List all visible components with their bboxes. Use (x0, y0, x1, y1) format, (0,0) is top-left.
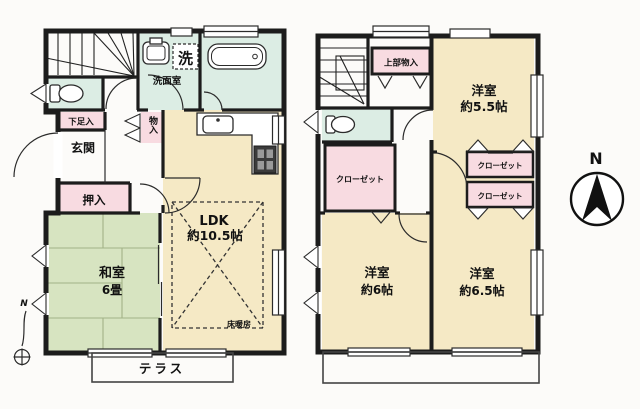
bedroom-c-label: 洋室 (469, 266, 495, 281)
tatami-size-label: 6畳 (102, 283, 122, 297)
laundry-label: 洗 (178, 50, 193, 68)
toilet-side-window-icon (31, 84, 46, 103)
compass-north-label: N (589, 149, 602, 168)
storage-bifold-door-icon-1 (125, 114, 140, 128)
floor1: 下足入 玄関 押入 和室 6畳 LDK 約10.5帖 床暖房 洗面室 洗 物入 … (14, 26, 285, 382)
bedroom-b-label: 洋室 (364, 265, 390, 280)
site-marker-line (22, 311, 26, 346)
oshiire-label: 押入 (83, 193, 106, 207)
tatami-side-window-icon-2 (32, 293, 46, 315)
hanging-wall-icon-2 (413, 76, 427, 88)
site-marker-north-label: N (20, 299, 28, 309)
floor2: 上部物入 洋室 約5.5帖 クローゼット クローゼット クローゼット 洋室 約6… (304, 26, 543, 383)
floor-plan-page: 下足入 玄関 押入 和室 6畳 LDK 約10.5帖 床暖房 洗面室 洗 物入 … (0, 0, 640, 409)
stairs-2f (318, 48, 368, 104)
storage-label: 物入 (147, 115, 159, 135)
ldk-label: LDK (199, 214, 229, 229)
shoe-storage-label: 下足入 (68, 118, 94, 128)
upper-storage-label: 上部物入 (384, 58, 419, 69)
toilet-side-window-icon-2f (304, 111, 318, 133)
washroom-window (171, 28, 192, 36)
entrance-label: 玄関 (71, 140, 95, 155)
closet-mid-upper-label: クローゼット (478, 160, 523, 170)
washroom-label: 洗面室 (153, 75, 182, 87)
bedroom-a-size-label: 約5.5帖 (460, 99, 508, 114)
terrace-label: テラス (139, 361, 185, 376)
tatami-room-label: 和室 (99, 265, 125, 281)
hall-door-arc (106, 78, 137, 109)
toilet-bowl-2f (332, 117, 355, 133)
tatami-side-window-icon-1 (32, 245, 46, 267)
bathroom (200, 31, 284, 110)
storage-bifold-door-icon-2 (125, 128, 140, 142)
bedroom-b-size-label: 約6帖 (361, 282, 393, 297)
washbasin-faucet-icon (150, 38, 162, 44)
bedroom-a-top-window (450, 29, 490, 38)
closet-left-label: クローゼット (336, 174, 384, 184)
bedroom-b-side-window-icon-2 (304, 292, 318, 314)
balcony (323, 352, 539, 383)
kitchen-faucet-icon (216, 118, 220, 122)
bedroom-a-door-arc (403, 110, 433, 140)
hanging-wall-icon-1 (378, 76, 392, 88)
toilet-bowl-1f (59, 85, 83, 102)
stairs-1f (46, 33, 134, 76)
closet-mid-lower-label: クローゼット (478, 191, 523, 201)
compass: N (571, 149, 623, 225)
bedroom-a-label: 洋室 (471, 83, 497, 98)
site-marker: N (14, 299, 31, 366)
ldk-size-label: 約10.5帖 (187, 228, 243, 243)
bedroom-b-side-window-icon-1 (304, 246, 318, 268)
bedroom-c-size-label: 約6.5帖 (459, 283, 504, 298)
bedroom-b (322, 213, 430, 350)
entrance-door-arc (14, 133, 58, 177)
floor-heating-label: 床暖房 (227, 319, 251, 329)
floor-plan-drawing: 下足入 玄関 押入 和室 6畳 LDK 約10.5帖 床暖房 洗面室 洗 物入 … (0, 0, 640, 409)
